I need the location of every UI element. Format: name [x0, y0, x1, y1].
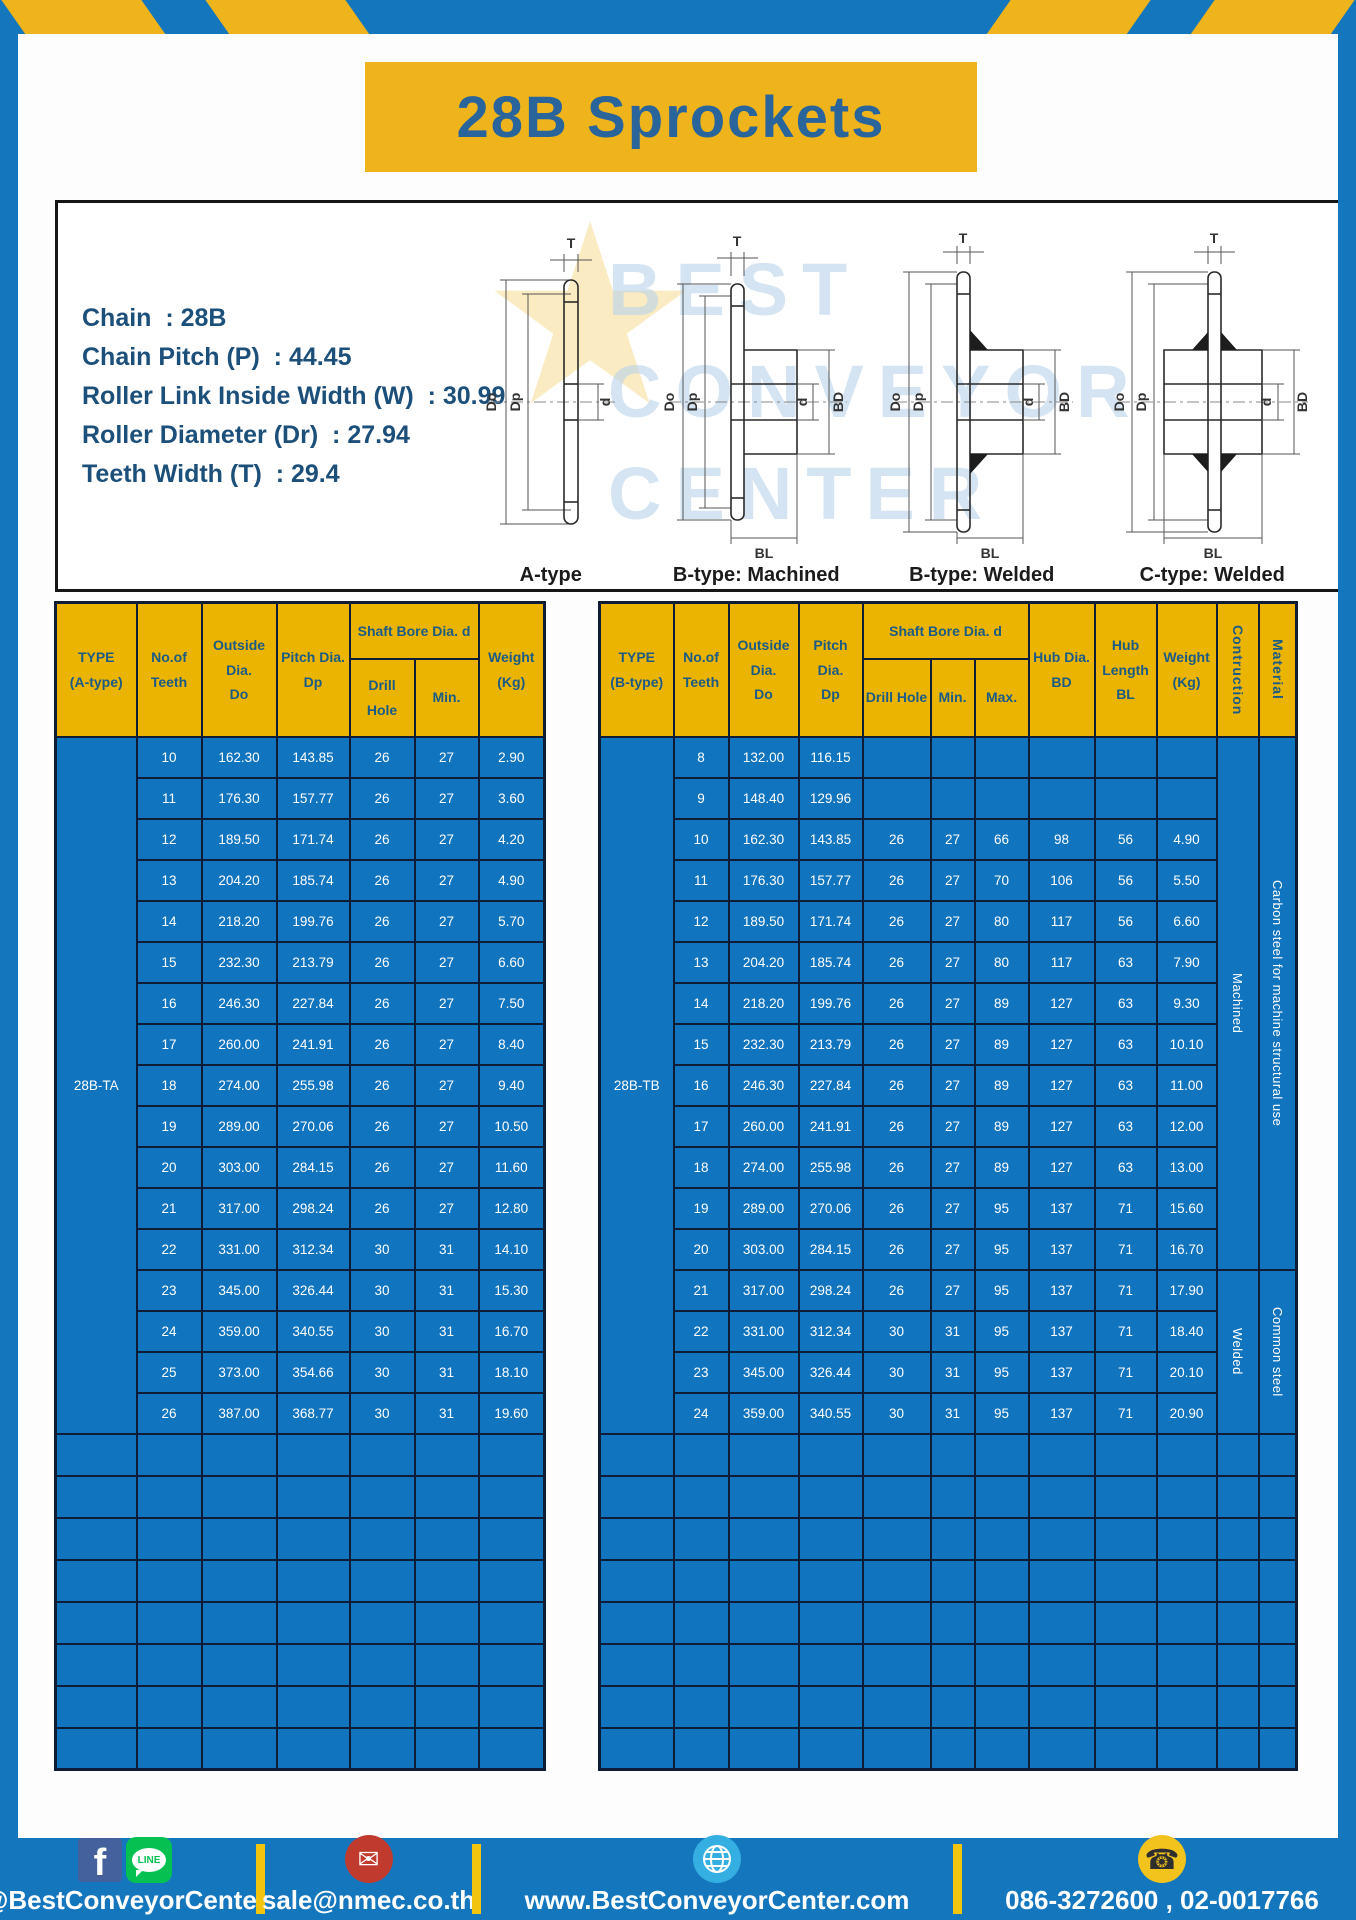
table-cell: 4.20 — [479, 819, 545, 860]
dim-t-label: T — [566, 235, 575, 251]
table-cell — [479, 1728, 545, 1770]
c-type-welded-drawing: Do Dp T d — [1112, 232, 1312, 562]
table-row: 23345.00326.443031951377120.10 — [600, 1352, 1297, 1393]
table-cell: 27 — [415, 983, 479, 1024]
table-cell: 27 — [931, 983, 975, 1024]
table-cell: 11 — [137, 778, 202, 819]
table-cell: 98 — [1029, 819, 1095, 860]
col-header-hub-length: Hub Length BL — [1095, 603, 1157, 737]
table-cell: 27 — [415, 1106, 479, 1147]
table-cell — [1217, 1728, 1259, 1770]
table-cell: 26 — [863, 1229, 931, 1270]
table-row: 28B-TA10162.30143.8526272.90 — [56, 737, 545, 778]
table-cell: 387.00 — [202, 1393, 277, 1434]
table-cell: 31 — [931, 1311, 975, 1352]
table-cell — [799, 1728, 863, 1770]
table-cell: 213.79 — [799, 1024, 863, 1065]
table-cell — [277, 1602, 350, 1644]
table-cell — [1029, 1560, 1095, 1602]
table-cell — [1095, 1518, 1157, 1560]
table-cell: 18.40 — [1157, 1311, 1217, 1352]
table-cell: 9.30 — [1157, 983, 1217, 1024]
table-cell: 14 — [137, 901, 202, 942]
table-cell — [600, 1476, 674, 1518]
table-cell — [863, 1434, 931, 1476]
empty-row — [56, 1434, 545, 1476]
table-cell — [931, 1560, 975, 1602]
table-cell: 27 — [931, 1229, 975, 1270]
table-cell — [729, 1644, 799, 1686]
table-cell: 26 — [350, 1024, 415, 1065]
col-header-pitch-dia: Pitch Dia. Dp — [277, 603, 350, 737]
table-cell: 127 — [1029, 983, 1095, 1024]
table-cell: 9 — [674, 778, 729, 819]
table-cell — [415, 1686, 479, 1728]
footer-divider — [472, 1844, 481, 1914]
table-cell: 26 — [350, 819, 415, 860]
table-cell — [1157, 778, 1217, 819]
footer-divider — [953, 1844, 962, 1914]
right-border — [1338, 0, 1356, 1920]
table-cell — [674, 1434, 729, 1476]
table-cell: 27 — [931, 819, 975, 860]
table-cell: 63 — [1095, 1147, 1157, 1188]
table-row: 24359.00340.553031951377120.90 — [600, 1393, 1297, 1434]
table-cell: 227.84 — [277, 983, 350, 1024]
globe-icon[interactable] — [693, 1835, 741, 1883]
a-type-table: TYPE (A-type) No.of Teeth Outside Dia. D… — [54, 601, 546, 1771]
table-cell: 26 — [863, 819, 931, 860]
table-cell — [202, 1686, 277, 1728]
table-cell — [863, 1602, 931, 1644]
table-cell: 31 — [931, 1352, 975, 1393]
table-cell: 7.50 — [479, 983, 545, 1024]
figure-c-type-welded: Do Dp T d — [1112, 232, 1312, 587]
table-cell — [202, 1518, 277, 1560]
table-cell: 95 — [975, 1188, 1029, 1229]
table-cell: 11 — [674, 860, 729, 901]
dim-dp-label: Dp — [1133, 393, 1149, 412]
table-cell — [56, 1434, 137, 1476]
table-cell — [1217, 1602, 1259, 1644]
empty-row — [56, 1476, 545, 1518]
table-cell: 30 — [863, 1352, 931, 1393]
table-cell: 30 — [863, 1311, 931, 1352]
table-cell: 63 — [1095, 1024, 1157, 1065]
table-cell: 26 — [350, 737, 415, 778]
col-header-min: Min. — [415, 659, 479, 737]
table-cell: 10 — [137, 737, 202, 778]
table-cell: 162.30 — [202, 737, 277, 778]
table-cell: 127 — [1029, 1106, 1095, 1147]
table-cell — [931, 1434, 975, 1476]
table-cell: 89 — [975, 1106, 1029, 1147]
table-cell — [1217, 1476, 1259, 1518]
table-cell — [729, 1476, 799, 1518]
table-cell: 71 — [1095, 1229, 1157, 1270]
table-cell: 331.00 — [729, 1311, 799, 1352]
table-cell — [350, 1560, 415, 1602]
table-cell — [1157, 1644, 1217, 1686]
table-cell — [350, 1644, 415, 1686]
table-cell: 89 — [975, 1065, 1029, 1106]
table-cell — [600, 1518, 674, 1560]
title-banner: 28B Sprockets — [365, 62, 977, 172]
b-type-table: TYPE (B-type) No.of Teeth Outside Dia. D… — [598, 601, 1298, 1771]
dim-do-label: Do — [661, 393, 677, 412]
figure-b-type-welded: Do Dp T d BD — [887, 232, 1077, 587]
table-row: 11176.30157.77262770106565.50 — [600, 860, 1297, 901]
table-cell — [674, 1644, 729, 1686]
table-cell: 24 — [137, 1311, 202, 1352]
table-cell: 232.30 — [729, 1024, 799, 1065]
table-cell — [137, 1434, 202, 1476]
line-icon[interactable]: LINE — [126, 1837, 172, 1883]
table-cell: 17.90 — [1157, 1270, 1217, 1311]
table-row: 21317.00298.242627951377117.90WeldedComm… — [600, 1270, 1297, 1311]
table-row: 15232.30213.792627891276310.10 — [600, 1024, 1297, 1065]
table-cell — [1259, 1434, 1297, 1476]
b-type-machined-drawing: Do Dp T d BD BL — [661, 232, 851, 562]
table-cell — [1259, 1518, 1297, 1560]
table-cell — [931, 737, 975, 778]
table-cell — [600, 1602, 674, 1644]
table-cell — [1259, 1728, 1297, 1770]
facebook-icon[interactable]: f — [78, 1838, 122, 1882]
table-cell: 27 — [415, 737, 479, 778]
table-cell — [1217, 1686, 1259, 1728]
table-cell: 27 — [415, 819, 479, 860]
table-cell — [863, 1686, 931, 1728]
col-header-drill-hole: Drill Hole — [863, 659, 931, 737]
table-cell — [729, 1728, 799, 1770]
table-cell: 340.55 — [277, 1311, 350, 1352]
table-cell — [600, 1560, 674, 1602]
table-cell: 56 — [1095, 819, 1157, 860]
table-cell: 26 — [863, 1147, 931, 1188]
table-cell — [1095, 1560, 1157, 1602]
table-cell: 359.00 — [202, 1311, 277, 1352]
table-cell: 12 — [674, 901, 729, 942]
table-cell: 25 — [137, 1352, 202, 1393]
page-title: 28B Sprockets — [365, 62, 977, 174]
contact-footer: f LINE @BestConveyorCenter ✉ sale@nmec.c… — [0, 1838, 1356, 1920]
table-cell: 127 — [1029, 1024, 1095, 1065]
table-cell: 27 — [415, 901, 479, 942]
table-cell: 13 — [674, 942, 729, 983]
table-cell — [1157, 1686, 1217, 1728]
table-cell: 8 — [674, 737, 729, 778]
table-cell — [479, 1476, 545, 1518]
table-row: 9148.40129.96 — [600, 778, 1297, 819]
table-cell: 16 — [674, 1065, 729, 1106]
table-cell: 31 — [415, 1393, 479, 1434]
table-cell: 26 — [863, 1065, 931, 1106]
table-cell: 20 — [674, 1229, 729, 1270]
empty-row — [600, 1518, 1297, 1560]
table-cell — [1029, 1518, 1095, 1560]
top-hazard-bar — [0, 0, 1356, 34]
table-row: 18274.00255.982627891276313.00 — [600, 1147, 1297, 1188]
social-handle[interactable]: @BestConveyorCenter — [0, 1885, 267, 1916]
table-cell — [1259, 1602, 1297, 1644]
hazard-stripe — [1185, 0, 1356, 34]
table-cell: 23 — [137, 1270, 202, 1311]
table-cell: 11.00 — [1157, 1065, 1217, 1106]
table-cell — [277, 1518, 350, 1560]
table-cell — [350, 1686, 415, 1728]
table-cell — [350, 1602, 415, 1644]
table-cell: 260.00 — [729, 1106, 799, 1147]
table-cell: 143.85 — [799, 819, 863, 860]
table-cell: 10.10 — [1157, 1024, 1217, 1065]
table-cell: 26 — [350, 1188, 415, 1229]
table-cell — [729, 1518, 799, 1560]
col-header-hub-dia: Hub Dia. BD — [1029, 603, 1095, 737]
email-address[interactable]: sale@nmec.co.th — [262, 1885, 475, 1916]
email-section: ✉ sale@nmec.co.th — [271, 1838, 466, 1920]
table-cell — [56, 1476, 137, 1518]
table-cell: 89 — [975, 983, 1029, 1024]
table-cell: 157.77 — [277, 778, 350, 819]
col-header-material: Material — [1259, 603, 1297, 737]
empty-row — [600, 1644, 1297, 1686]
table-cell — [863, 1728, 931, 1770]
sprocket-drawings: Do Dp T d A-type — [458, 209, 1330, 587]
table-cell — [931, 1476, 975, 1518]
table-cell — [1157, 1434, 1217, 1476]
col-header-drill-hole: Drill Hole — [350, 659, 415, 737]
table-cell: 137 — [1029, 1270, 1095, 1311]
table-cell: 10.50 — [479, 1106, 545, 1147]
vertical-cell: Welded — [1217, 1270, 1259, 1434]
spec-list: Chain : 28B Chain Pitch (P) : 44.45 Roll… — [82, 299, 505, 494]
table-cell: 80 — [975, 901, 1029, 942]
table-cell: 359.00 — [729, 1393, 799, 1434]
table-cell: 16 — [137, 983, 202, 1024]
dim-d-label: d — [597, 398, 613, 407]
table-cell — [1095, 1476, 1157, 1518]
website-url[interactable]: www.BestConveyorCenter.com — [525, 1885, 910, 1916]
table-cell: 27 — [415, 942, 479, 983]
table-cell — [56, 1602, 137, 1644]
figure-caption: C-type: Welded — [1140, 564, 1285, 587]
table-cell: 137 — [1029, 1311, 1095, 1352]
table-cell: 5.50 — [1157, 860, 1217, 901]
dim-do-label: Do — [887, 393, 903, 412]
table-cell: 19 — [137, 1106, 202, 1147]
table-cell — [1029, 1434, 1095, 1476]
table-cell — [137, 1518, 202, 1560]
table-cell: 27 — [931, 1188, 975, 1229]
col-header-construction: Contruction — [1217, 603, 1259, 737]
dim-t-label: T — [733, 233, 742, 249]
table-cell: 63 — [1095, 1106, 1157, 1147]
type-cell: 28B-TB — [600, 737, 674, 1434]
table-cell: 8.40 — [479, 1024, 545, 1065]
table-cell: 9.40 — [479, 1065, 545, 1106]
table-cell: 260.00 — [202, 1024, 277, 1065]
table-cell: 284.15 — [799, 1229, 863, 1270]
table-cell: 14.10 — [479, 1229, 545, 1270]
figure-a-type: Do Dp T d A-type — [476, 232, 626, 587]
table-cell: 171.74 — [799, 901, 863, 942]
table-cell — [729, 1602, 799, 1644]
table-cell — [479, 1686, 545, 1728]
table-cell — [350, 1476, 415, 1518]
table-cell: 95 — [975, 1229, 1029, 1270]
vertical-cell: Carbon steel for machine structural use — [1259, 737, 1297, 1270]
table-cell — [415, 1728, 479, 1770]
table-cell: 143.85 — [277, 737, 350, 778]
table-cell: 368.77 — [277, 1393, 350, 1434]
datasheet-page: 28B Sprockets ★ BEST CONVEYOR CENTER Cha… — [0, 0, 1356, 1920]
table-cell: 27 — [931, 1065, 975, 1106]
col-header-outside-dia: Outside Dia. Do — [202, 603, 277, 737]
table-cell: 30 — [350, 1229, 415, 1270]
table-cell: 26 — [863, 901, 931, 942]
table-cell: 56 — [1095, 860, 1157, 901]
table-cell — [1157, 1728, 1217, 1770]
phone-section: ☎ 086-3272600 , 02-0017766 — [968, 1838, 1356, 1920]
table-cell: 14 — [674, 983, 729, 1024]
b-type-table-header: TYPE (B-type) No.of Teeth Outside Dia. D… — [600, 603, 1297, 737]
table-cell: 16.70 — [1157, 1229, 1217, 1270]
table-cell: 298.24 — [277, 1188, 350, 1229]
diagram-box: ★ BEST CONVEYOR CENTER Chain : 28B Chain… — [55, 200, 1341, 592]
dim-dp-label: Dp — [684, 393, 700, 412]
table-cell: 18 — [137, 1065, 202, 1106]
vertical-cell: Common steel — [1259, 1270, 1297, 1434]
spec-chain-pitch: Chain Pitch (P) : 44.45 — [82, 338, 505, 377]
table-cell — [1259, 1644, 1297, 1686]
table-cell: 241.91 — [277, 1024, 350, 1065]
table-cell: 127 — [1029, 1147, 1095, 1188]
table-cell: 162.30 — [729, 819, 799, 860]
table-cell: 26 — [863, 1106, 931, 1147]
table-cell: 80 — [975, 942, 1029, 983]
table-cell — [931, 1644, 975, 1686]
table-row: 16246.30227.842627891276311.00 — [600, 1065, 1297, 1106]
table-cell: 70 — [975, 860, 1029, 901]
table-cell: 289.00 — [202, 1106, 277, 1147]
table-cell: 63 — [1095, 983, 1157, 1024]
table-cell: 185.74 — [277, 860, 350, 901]
vertical-cell: Machined — [1217, 737, 1259, 1270]
mail-icon[interactable]: ✉ — [345, 1835, 393, 1883]
table-cell — [1157, 1602, 1217, 1644]
table-cell: 63 — [1095, 942, 1157, 983]
table-cell: 21 — [674, 1270, 729, 1311]
table-cell: 354.66 — [277, 1352, 350, 1393]
table-cell: 26 — [863, 942, 931, 983]
table-cell: 26 — [863, 983, 931, 1024]
table-cell: 326.44 — [277, 1270, 350, 1311]
spec-roller-link-width: Roller Link Inside Width (W) : 30.99 — [82, 377, 505, 416]
table-cell — [799, 1560, 863, 1602]
table-cell: 89 — [975, 1147, 1029, 1188]
table-cell — [277, 1476, 350, 1518]
empty-row — [56, 1602, 545, 1644]
hazard-stripe — [981, 0, 1155, 34]
table-cell: 132.00 — [729, 737, 799, 778]
table-cell — [202, 1434, 277, 1476]
table-cell: 106 — [1029, 860, 1095, 901]
figure-caption: B-type: Welded — [909, 564, 1054, 587]
table-cell: 66 — [975, 819, 1029, 860]
table-cell: 27 — [931, 942, 975, 983]
table-cell: 204.20 — [729, 942, 799, 983]
table-cell: 2.90 — [479, 737, 545, 778]
table-cell — [674, 1476, 729, 1518]
table-cell — [137, 1560, 202, 1602]
table-cell: 71 — [1095, 1393, 1157, 1434]
table-cell: 27 — [415, 1024, 479, 1065]
table-cell — [56, 1560, 137, 1602]
table-cell: 148.40 — [729, 778, 799, 819]
table-cell — [863, 778, 931, 819]
table-cell — [415, 1434, 479, 1476]
col-header-shaft-bore: Shaft Bore Dia. d — [350, 603, 479, 659]
table-cell: 137 — [1029, 1352, 1095, 1393]
table-cell: 137 — [1029, 1393, 1095, 1434]
table-cell: 95 — [975, 1311, 1029, 1352]
table-cell: 26 — [350, 983, 415, 1024]
table-cell: 95 — [975, 1270, 1029, 1311]
table-cell: 176.30 — [202, 778, 277, 819]
table-cell: 12.00 — [1157, 1106, 1217, 1147]
table-cell: 303.00 — [729, 1229, 799, 1270]
table-cell: 12 — [137, 819, 202, 860]
phone-numbers[interactable]: 086-3272600 , 02-0017766 — [1005, 1885, 1319, 1916]
table-cell — [277, 1434, 350, 1476]
line-bubble-tail — [136, 1870, 143, 1877]
hazard-stripe — [201, 0, 375, 34]
table-cell — [202, 1728, 277, 1770]
table-cell: 27 — [931, 1106, 975, 1147]
table-cell: 127 — [1029, 1065, 1095, 1106]
phone-icon[interactable]: ☎ — [1138, 1835, 1186, 1883]
table-cell: 27 — [931, 1270, 975, 1311]
table-cell: 3.60 — [479, 778, 545, 819]
table-cell: 270.06 — [799, 1188, 863, 1229]
table-cell: 204.20 — [202, 860, 277, 901]
table-cell — [202, 1560, 277, 1602]
dim-t-label: T — [1210, 232, 1219, 246]
table-cell: 7.90 — [1157, 942, 1217, 983]
table-cell — [56, 1728, 137, 1770]
table-cell — [674, 1686, 729, 1728]
table-row: 10162.30143.8526276698564.90 — [600, 819, 1297, 860]
table-cell — [1029, 1728, 1095, 1770]
table-cell: 30 — [863, 1393, 931, 1434]
table-cell: 63 — [1095, 1065, 1157, 1106]
table-cell: 15 — [137, 942, 202, 983]
table-cell — [1157, 1560, 1217, 1602]
table-cell — [137, 1602, 202, 1644]
table-cell: 26 — [863, 1270, 931, 1311]
table-row: 12189.50171.74262780117566.60 — [600, 901, 1297, 942]
table-cell — [202, 1476, 277, 1518]
empty-row — [56, 1518, 545, 1560]
table-cell — [1157, 737, 1217, 778]
table-cell — [674, 1560, 729, 1602]
table-cell: 27 — [415, 1065, 479, 1106]
table-cell: 13 — [137, 860, 202, 901]
table-cell — [1029, 1476, 1095, 1518]
table-cell — [863, 1644, 931, 1686]
line-glyph: LINE — [132, 1848, 166, 1872]
